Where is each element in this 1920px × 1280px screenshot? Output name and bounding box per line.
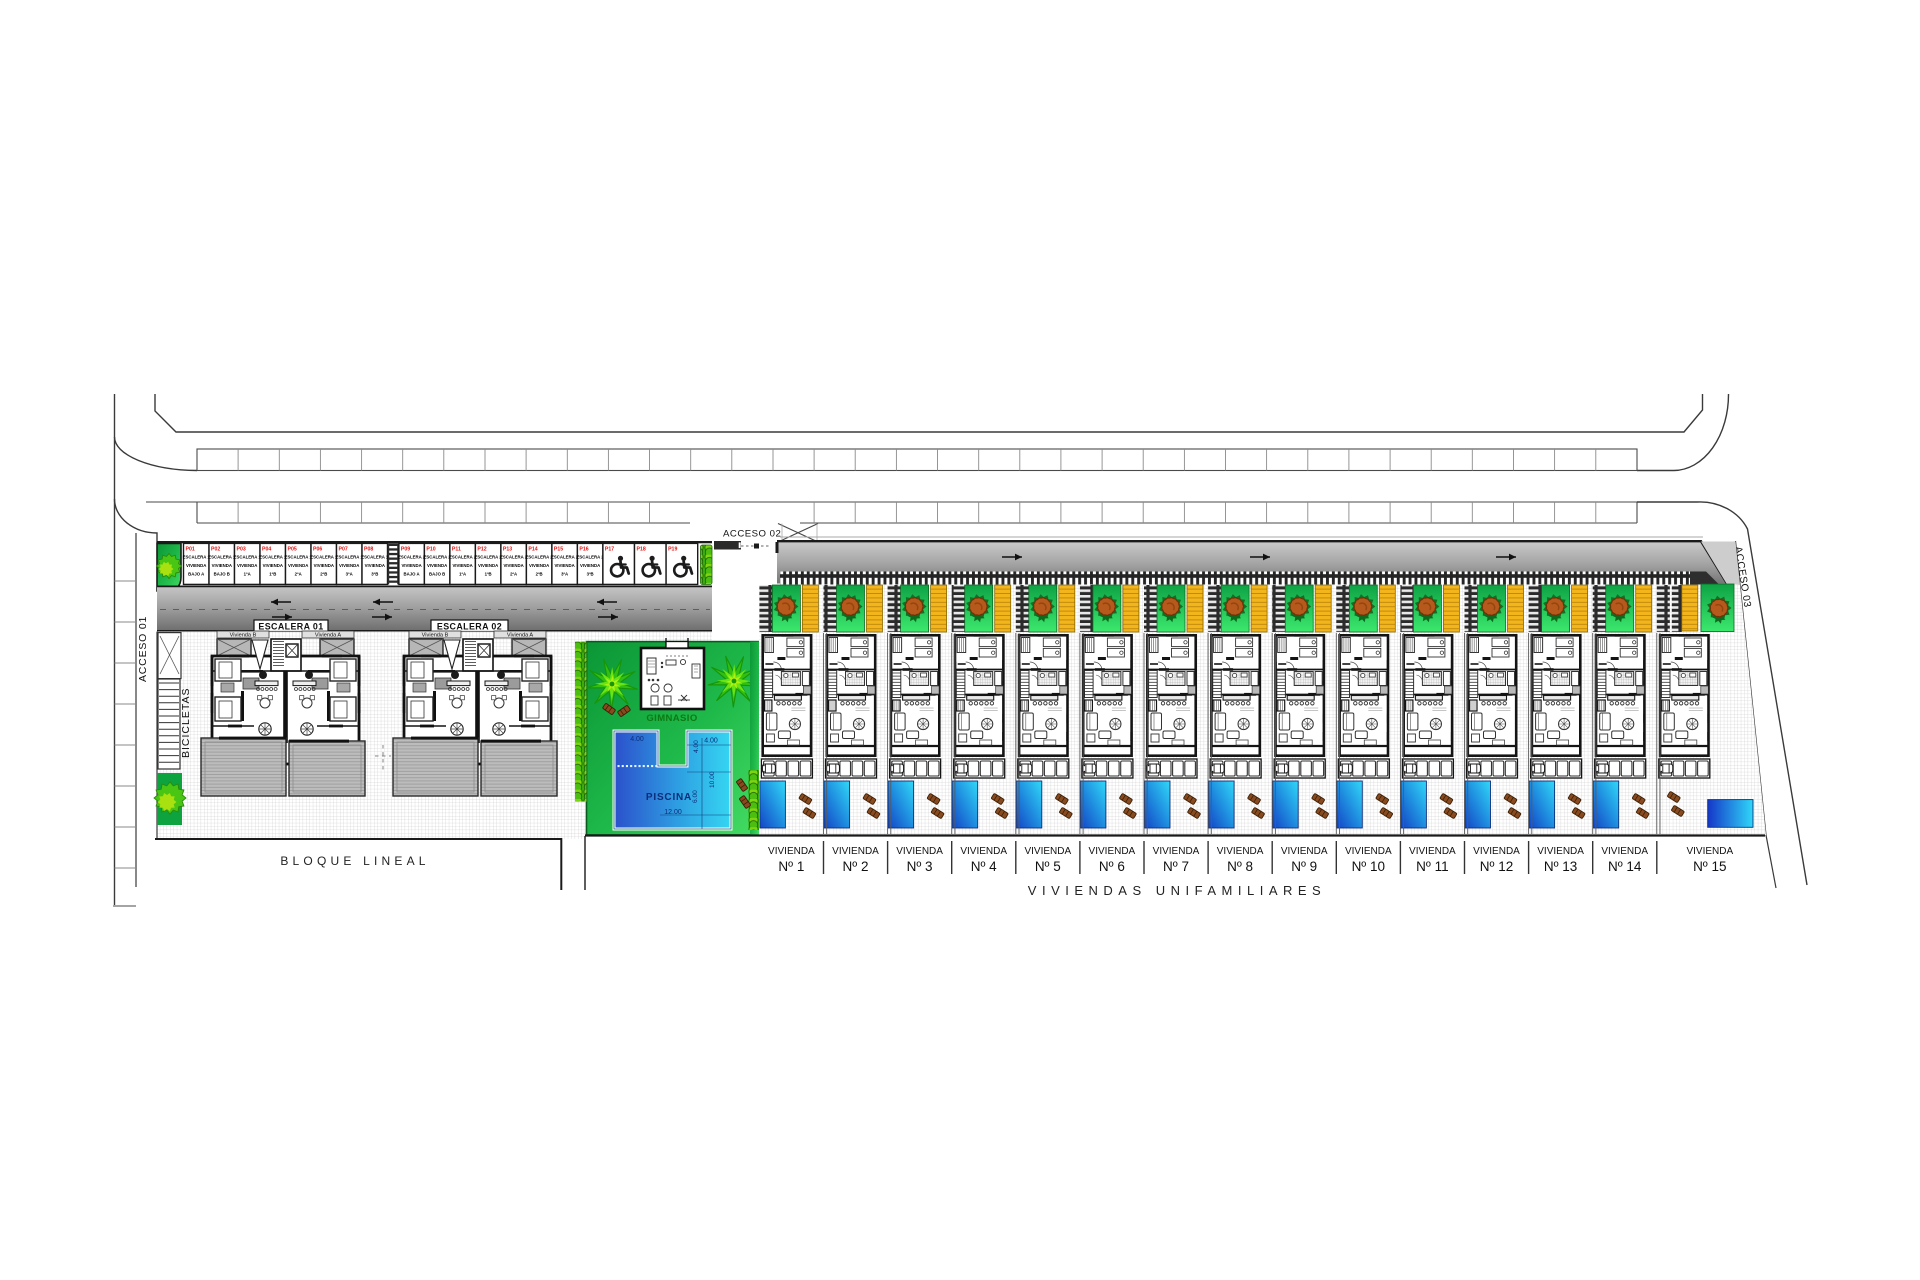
svg-text:VIVIENDA: VIVIENDA [401,563,421,568]
svg-text:VIVIENDA: VIVIENDA [1601,846,1648,857]
svg-text:VIVIENDA: VIVIENDA [339,563,359,568]
svg-text:Nº 6: Nº 6 [1099,859,1125,874]
svg-text:Nº 11: Nº 11 [1416,859,1448,874]
svg-text:2ºB: 2ºB [320,572,327,577]
svg-text:P19: P19 [668,546,677,552]
svg-text:ESCALERA 2: ESCALERA 2 [500,555,528,560]
svg-text:P11: P11 [452,546,461,552]
svg-text:3ºB: 3ºB [371,572,378,577]
svg-text:P15: P15 [554,546,563,552]
svg-text:VIVIENDA: VIVIENDA [529,563,549,568]
svg-text:P02: P02 [211,546,220,552]
svg-text:VIVIENDA: VIVIENDA [503,563,523,568]
svg-text:VIVIENDA: VIVIENDA [186,563,206,568]
svg-text:2ºA: 2ºA [295,572,302,577]
svg-text:3ºB: 3ºB [587,572,594,577]
svg-text:VIVIENDA: VIVIENDA [1024,846,1071,857]
svg-text:Nº 9: Nº 9 [1291,859,1317,874]
svg-text:VIVIENDAS UNIFAMILIARES: VIVIENDAS UNIFAMILIARES [1028,883,1326,898]
svg-text:VIVIENDA: VIVIENDA [960,846,1007,857]
svg-text:ESCALERA 2: ESCALERA 2 [398,555,426,560]
svg-text:Nº 10: Nº 10 [1352,859,1385,874]
svg-text:1ºB: 1ºB [485,572,492,577]
svg-text:P16: P16 [579,546,588,552]
svg-text:BLOQUE LINEAL: BLOQUE LINEAL [280,854,429,868]
svg-text:VIVIENDA: VIVIENDA [427,563,447,568]
svg-text:4.00: 4.00 [693,740,700,753]
svg-text:ESCALERA 2: ESCALERA 2 [551,555,579,560]
svg-text:ESCALERA 02: ESCALERA 02 [437,621,502,631]
svg-text:VIVIENDA: VIVIENDA [314,563,334,568]
svg-text:VIVIENDA: VIVIENDA [1345,846,1392,857]
svg-text:ESCALERA 1: ESCALERA 1 [259,555,287,560]
svg-text:P03: P03 [237,546,246,552]
svg-text:P01: P01 [186,546,195,552]
svg-text:Nº 14: Nº 14 [1608,859,1642,874]
svg-text:P13: P13 [503,546,512,552]
svg-text:Nº 12: Nº 12 [1480,859,1513,874]
svg-text:10.00: 10.00 [709,771,716,788]
svg-text:P14: P14 [528,546,537,552]
svg-text:ESCALERA 1: ESCALERA 1 [183,555,211,560]
svg-text:2ºB: 2ºB [536,572,543,577]
svg-text:ESCALERA 1: ESCALERA 1 [336,555,364,560]
svg-text:BICICLETAS: BICICLETAS [180,688,192,759]
svg-text:VIVIENDA: VIVIENDA [554,563,574,568]
svg-text:ESCALERA 2: ESCALERA 2 [475,555,503,560]
svg-text:VIVIENDA: VIVIENDA [1089,846,1136,857]
svg-text:VIVIENDA: VIVIENDA [580,563,600,568]
svg-text:ACCESO 02: ACCESO 02 [723,529,781,540]
svg-text:P05: P05 [288,546,297,552]
svg-text:1ºA: 1ºA [459,572,466,577]
svg-text:VIVIENDA: VIVIENDA [365,563,385,568]
svg-text:GIMNASIO: GIMNASIO [646,713,697,724]
svg-text:P06: P06 [313,546,322,552]
svg-text:Nº 15: Nº 15 [1693,859,1726,874]
svg-text:VIVIENDA: VIVIENDA [288,563,308,568]
svg-text:VIVIENDA: VIVIENDA [237,563,257,568]
svg-text:VIVIENDA: VIVIENDA [1217,846,1264,857]
svg-text:Nº 7: Nº 7 [1163,859,1189,874]
svg-text:VIVIENDA: VIVIENDA [1686,846,1733,857]
svg-text:BAJO B: BAJO B [214,572,230,577]
svg-text:P10: P10 [426,546,435,552]
svg-text:ESCALERA 1: ESCALERA 1 [285,555,313,560]
svg-text:6.00: 6.00 [692,790,699,803]
svg-text:Nº 13: Nº 13 [1544,859,1577,874]
svg-text:ESCALERA 01: ESCALERA 01 [258,621,323,631]
svg-text:2ºA: 2ºA [510,572,517,577]
svg-text:P12: P12 [477,546,486,552]
svg-text:BAJO A: BAJO A [188,572,204,577]
svg-text:VIVIENDA: VIVIENDA [768,846,815,857]
svg-text:Nº 3: Nº 3 [907,859,933,874]
svg-text:BAJO A: BAJO A [404,572,420,577]
svg-text:Nº 8: Nº 8 [1227,859,1253,874]
svg-text:12.00: 12.00 [664,809,682,816]
svg-text:P04: P04 [262,546,271,552]
svg-text:ESCALERA 2: ESCALERA 2 [526,555,554,560]
svg-text:P09: P09 [401,546,410,552]
svg-text:VIVIENDA: VIVIENDA [1537,846,1584,857]
svg-text:VIVIENDA: VIVIENDA [212,563,232,568]
svg-text:Nº 5: Nº 5 [1035,859,1061,874]
svg-text:P08: P08 [364,546,373,552]
svg-text:ESCALERA 2: ESCALERA 2 [424,555,452,560]
svg-text:Nº 4: Nº 4 [971,859,997,874]
svg-text:ESCALERA 1: ESCALERA 1 [234,555,262,560]
svg-text:PISCINA: PISCINA [646,792,692,803]
svg-text:VIVIENDA: VIVIENDA [1281,846,1328,857]
svg-text:VIVIENDA: VIVIENDA [1153,846,1200,857]
svg-text:VIVIENDA: VIVIENDA [452,563,472,568]
svg-text:ESCALERA 2: ESCALERA 2 [577,555,605,560]
svg-text:ESCALERA 2: ESCALERA 2 [449,555,477,560]
svg-text:BAJO B: BAJO B [429,572,445,577]
svg-text:ESCALERA 1: ESCALERA 1 [310,555,338,560]
svg-text:P07: P07 [339,546,348,552]
svg-text:ESCALERA 1: ESCALERA 1 [361,555,389,560]
svg-text:VIVIENDA: VIVIENDA [896,846,943,857]
svg-text:3ºA: 3ºA [346,572,353,577]
svg-text:Nº 2: Nº 2 [843,859,869,874]
svg-text:1ºA: 1ºA [244,572,251,577]
svg-text:ESCALERA 1: ESCALERA 1 [208,555,236,560]
svg-text:P18: P18 [637,546,646,552]
svg-text:VIVIENDA: VIVIENDA [1409,846,1456,857]
svg-text:4.00: 4.00 [630,736,644,743]
svg-text:4.00: 4.00 [704,738,718,745]
svg-text:VIVIENDA: VIVIENDA [832,846,879,857]
svg-text:VIVIENDA: VIVIENDA [478,563,498,568]
svg-text:P17: P17 [605,546,614,552]
svg-text:VIVIENDA: VIVIENDA [263,563,283,568]
svg-text:1ºB: 1ºB [269,572,276,577]
svg-text:ACCESO 01: ACCESO 01 [137,616,149,682]
svg-text:VIVIENDA: VIVIENDA [1473,846,1520,857]
svg-text:3ºA: 3ºA [561,572,568,577]
svg-text:Nº 1: Nº 1 [778,859,804,874]
